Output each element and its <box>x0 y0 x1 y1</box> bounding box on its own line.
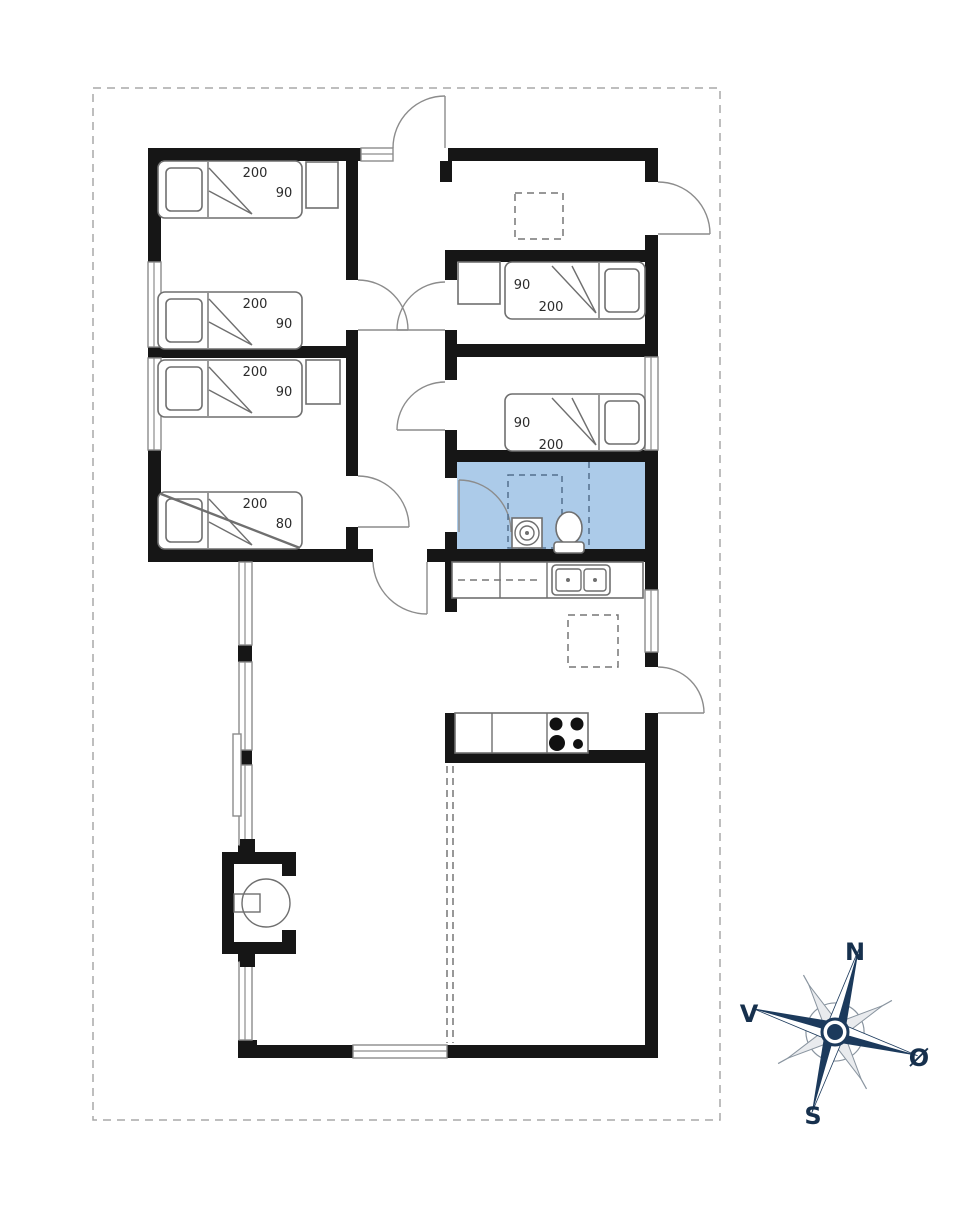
window-east-kitchen <box>645 590 658 652</box>
compass-west-label: V <box>740 1000 759 1028</box>
shower-drain <box>512 518 542 548</box>
window-west-living-1 <box>239 562 252 645</box>
bedroom-nw-door <box>358 280 408 330</box>
kitchen-counter-north <box>452 562 643 598</box>
bed-width-label: 80 <box>276 517 293 532</box>
compass-north-label: N <box>845 938 865 966</box>
toilet <box>554 512 584 553</box>
bed: 90 200 <box>505 262 645 319</box>
compass-east-label: Ø <box>909 1044 929 1072</box>
compass-hub <box>827 1024 843 1040</box>
property-boundary <box>93 88 720 1120</box>
small-furniture <box>306 162 500 404</box>
bed-width-label: 90 <box>276 385 293 400</box>
bed-length-label: 200 <box>539 438 564 453</box>
bed-width-label: 90 <box>514 278 531 293</box>
bed-width-label: 90 <box>276 186 293 201</box>
kitchen-east-door <box>658 667 704 713</box>
bed: 90 200 <box>505 394 645 453</box>
bedroom-e-upper-door <box>397 282 445 330</box>
bed-width-label: 90 <box>276 317 293 332</box>
skylight-entry <box>515 193 563 239</box>
bedroom-e-lower-door <box>397 382 445 430</box>
bed: 200 90 <box>158 292 302 349</box>
bed-length-label: 200 <box>539 300 564 315</box>
wood-stove-fireplace <box>222 839 296 967</box>
east-entry-door <box>658 182 710 234</box>
main-entrance-door <box>393 96 445 148</box>
open-terrace-door-leaf <box>233 734 241 816</box>
skylight-kitchen <box>568 615 618 667</box>
floor-plan-canvas: 200 90 200 90 200 90 200 <box>0 0 960 1221</box>
bed-length-label: 200 <box>243 497 268 512</box>
window-east-bedroom <box>645 357 658 450</box>
wardrobe <box>458 262 500 304</box>
kitchen-counter-south <box>455 713 588 753</box>
ridge-dashed-line <box>447 766 453 1043</box>
kitchen <box>452 562 643 753</box>
bed-length-label: 200 <box>243 297 268 312</box>
bed: 200 90 <box>158 360 302 417</box>
window-south-living <box>353 1045 447 1058</box>
bed: 200 90 <box>158 161 302 218</box>
nightstand <box>306 162 338 208</box>
window-north-entry <box>361 148 393 161</box>
bed-length-label: 200 <box>243 166 268 181</box>
bunk-bed: 200 80 <box>158 492 302 549</box>
window-west-living-3 <box>239 962 252 1040</box>
compass-rose: N V Ø S <box>729 926 941 1137</box>
hall-living-door <box>373 562 427 614</box>
nightstand <box>306 360 340 404</box>
bedroom-w-door <box>358 476 409 527</box>
compass-south-label: S <box>804 1102 821 1130</box>
kitchen-sink <box>552 565 610 595</box>
bed-length-label: 200 <box>243 365 268 380</box>
bathroom-floor <box>451 460 651 551</box>
floor-plan-drawing: 200 90 200 90 200 90 200 <box>0 0 960 1221</box>
bed-width-label: 90 <box>514 416 531 431</box>
